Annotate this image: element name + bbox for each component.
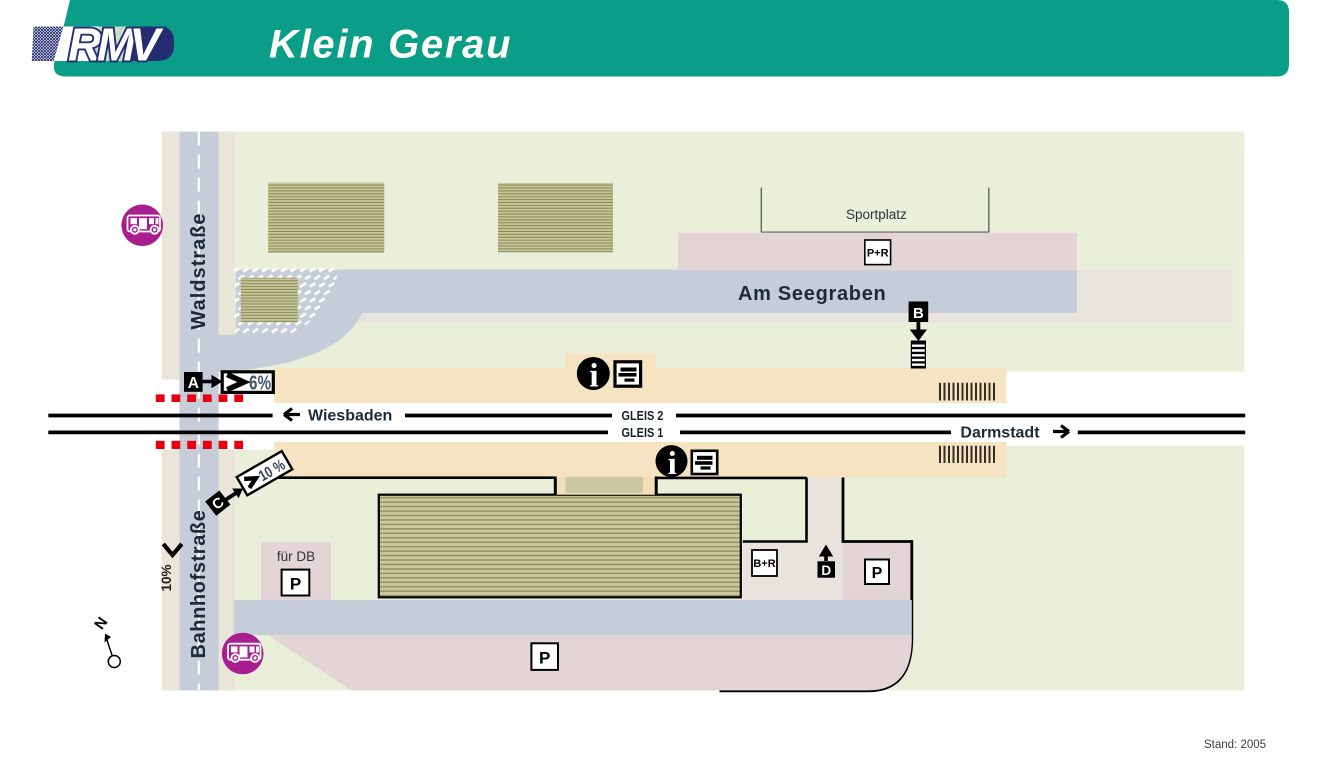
svg-text:10%: 10% xyxy=(159,564,174,591)
svg-text:V: V xyxy=(130,19,164,71)
svg-text:i: i xyxy=(668,446,677,482)
svg-text:Sportplatz: Sportplatz xyxy=(846,207,907,222)
svg-text:Wiesbaden: Wiesbaden xyxy=(308,408,392,425)
svg-text:B: B xyxy=(913,305,924,322)
svg-text:P: P xyxy=(290,575,301,594)
svg-text:A: A xyxy=(188,375,199,392)
svg-text:Darmstadt: Darmstadt xyxy=(960,425,1040,442)
svg-text:für DB: für DB xyxy=(277,549,315,564)
svg-text:GLEIS 1: GLEIS 1 xyxy=(622,425,664,440)
svg-text:Am Seegraben: Am Seegraben xyxy=(738,283,886,305)
svg-text:N: N xyxy=(91,614,111,633)
svg-text:6%: 6% xyxy=(249,371,271,394)
svg-text:Stand: 2005: Stand: 2005 xyxy=(1204,739,1266,751)
svg-text:i: i xyxy=(589,358,598,395)
svg-text:D: D xyxy=(821,563,831,578)
svg-text:Klein Gerau: Klein Gerau xyxy=(269,23,512,67)
svg-text:B+R: B+R xyxy=(753,558,775,570)
svg-text:GLEIS 2: GLEIS 2 xyxy=(622,408,664,423)
svg-text:Bahnhofstraße: Bahnhofstraße xyxy=(188,510,210,659)
svg-text:P: P xyxy=(539,649,550,668)
svg-text:P: P xyxy=(872,565,883,582)
svg-text:Waldstraße: Waldstraße xyxy=(188,212,210,329)
svg-text:P+R: P+R xyxy=(867,248,889,260)
